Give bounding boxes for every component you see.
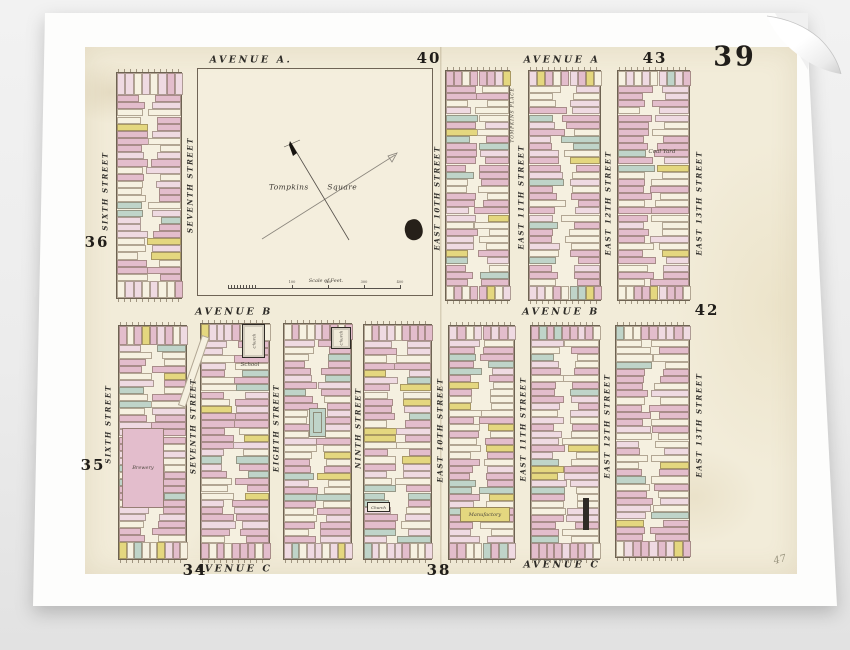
page-curl-icon <box>764 6 848 80</box>
scale-tick-number: 400 <box>397 280 404 284</box>
survey-arrow-head-icon <box>388 153 397 162</box>
scale-tick <box>400 285 401 289</box>
scale-tick <box>292 285 293 289</box>
print-sheet: Tompkins Square Scale of Feet. 100200300… <box>0 0 850 650</box>
framed-map-photo: Tompkins Square Scale of Feet. 100200300… <box>0 0 850 650</box>
scale-tick <box>364 285 365 289</box>
scale-tick <box>328 285 329 289</box>
survey-arrow-line <box>262 155 395 239</box>
ink-blot <box>405 219 423 240</box>
tompkins-square-label: Tompkins Square <box>269 183 357 192</box>
compass-line <box>291 143 349 240</box>
scale-tick-number: 300 <box>361 280 368 284</box>
scale-bar-hatch <box>228 285 256 288</box>
scale-bar <box>228 288 401 289</box>
print-sheet-wrap: Tompkins Square Scale of Feet. 100200300… <box>0 0 850 650</box>
scale-tick-number: 100 <box>289 280 296 284</box>
scale-tick-number: 200 <box>325 280 332 284</box>
tompkins-square: Tompkins Square Scale of Feet. 100200300… <box>197 68 433 296</box>
center-fold-crease <box>440 47 442 574</box>
